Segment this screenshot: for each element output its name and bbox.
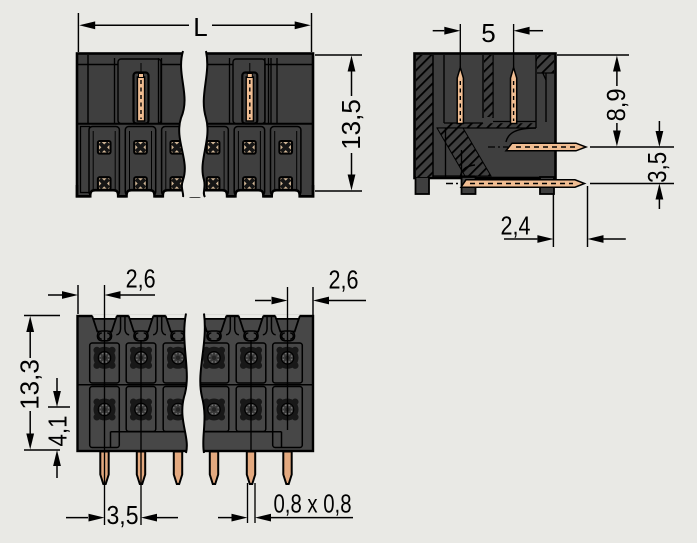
svg-text:4,1: 4,1: [42, 416, 72, 447]
svg-text:2,4: 2,4: [501, 211, 531, 241]
svg-text:2,6: 2,6: [329, 265, 359, 295]
svg-text:13,3: 13,3: [15, 359, 45, 410]
svg-text:0,8 x 0,8: 0,8 x 0,8: [274, 488, 352, 518]
svg-text:3,5: 3,5: [642, 152, 672, 183]
svg-text:8,9: 8,9: [601, 88, 631, 121]
svg-text:13,5: 13,5: [336, 99, 366, 150]
svg-text:2,6: 2,6: [126, 264, 156, 294]
svg-text:L: L: [193, 12, 207, 42]
svg-text:3,5: 3,5: [107, 500, 139, 530]
svg-text:5: 5: [481, 18, 495, 48]
